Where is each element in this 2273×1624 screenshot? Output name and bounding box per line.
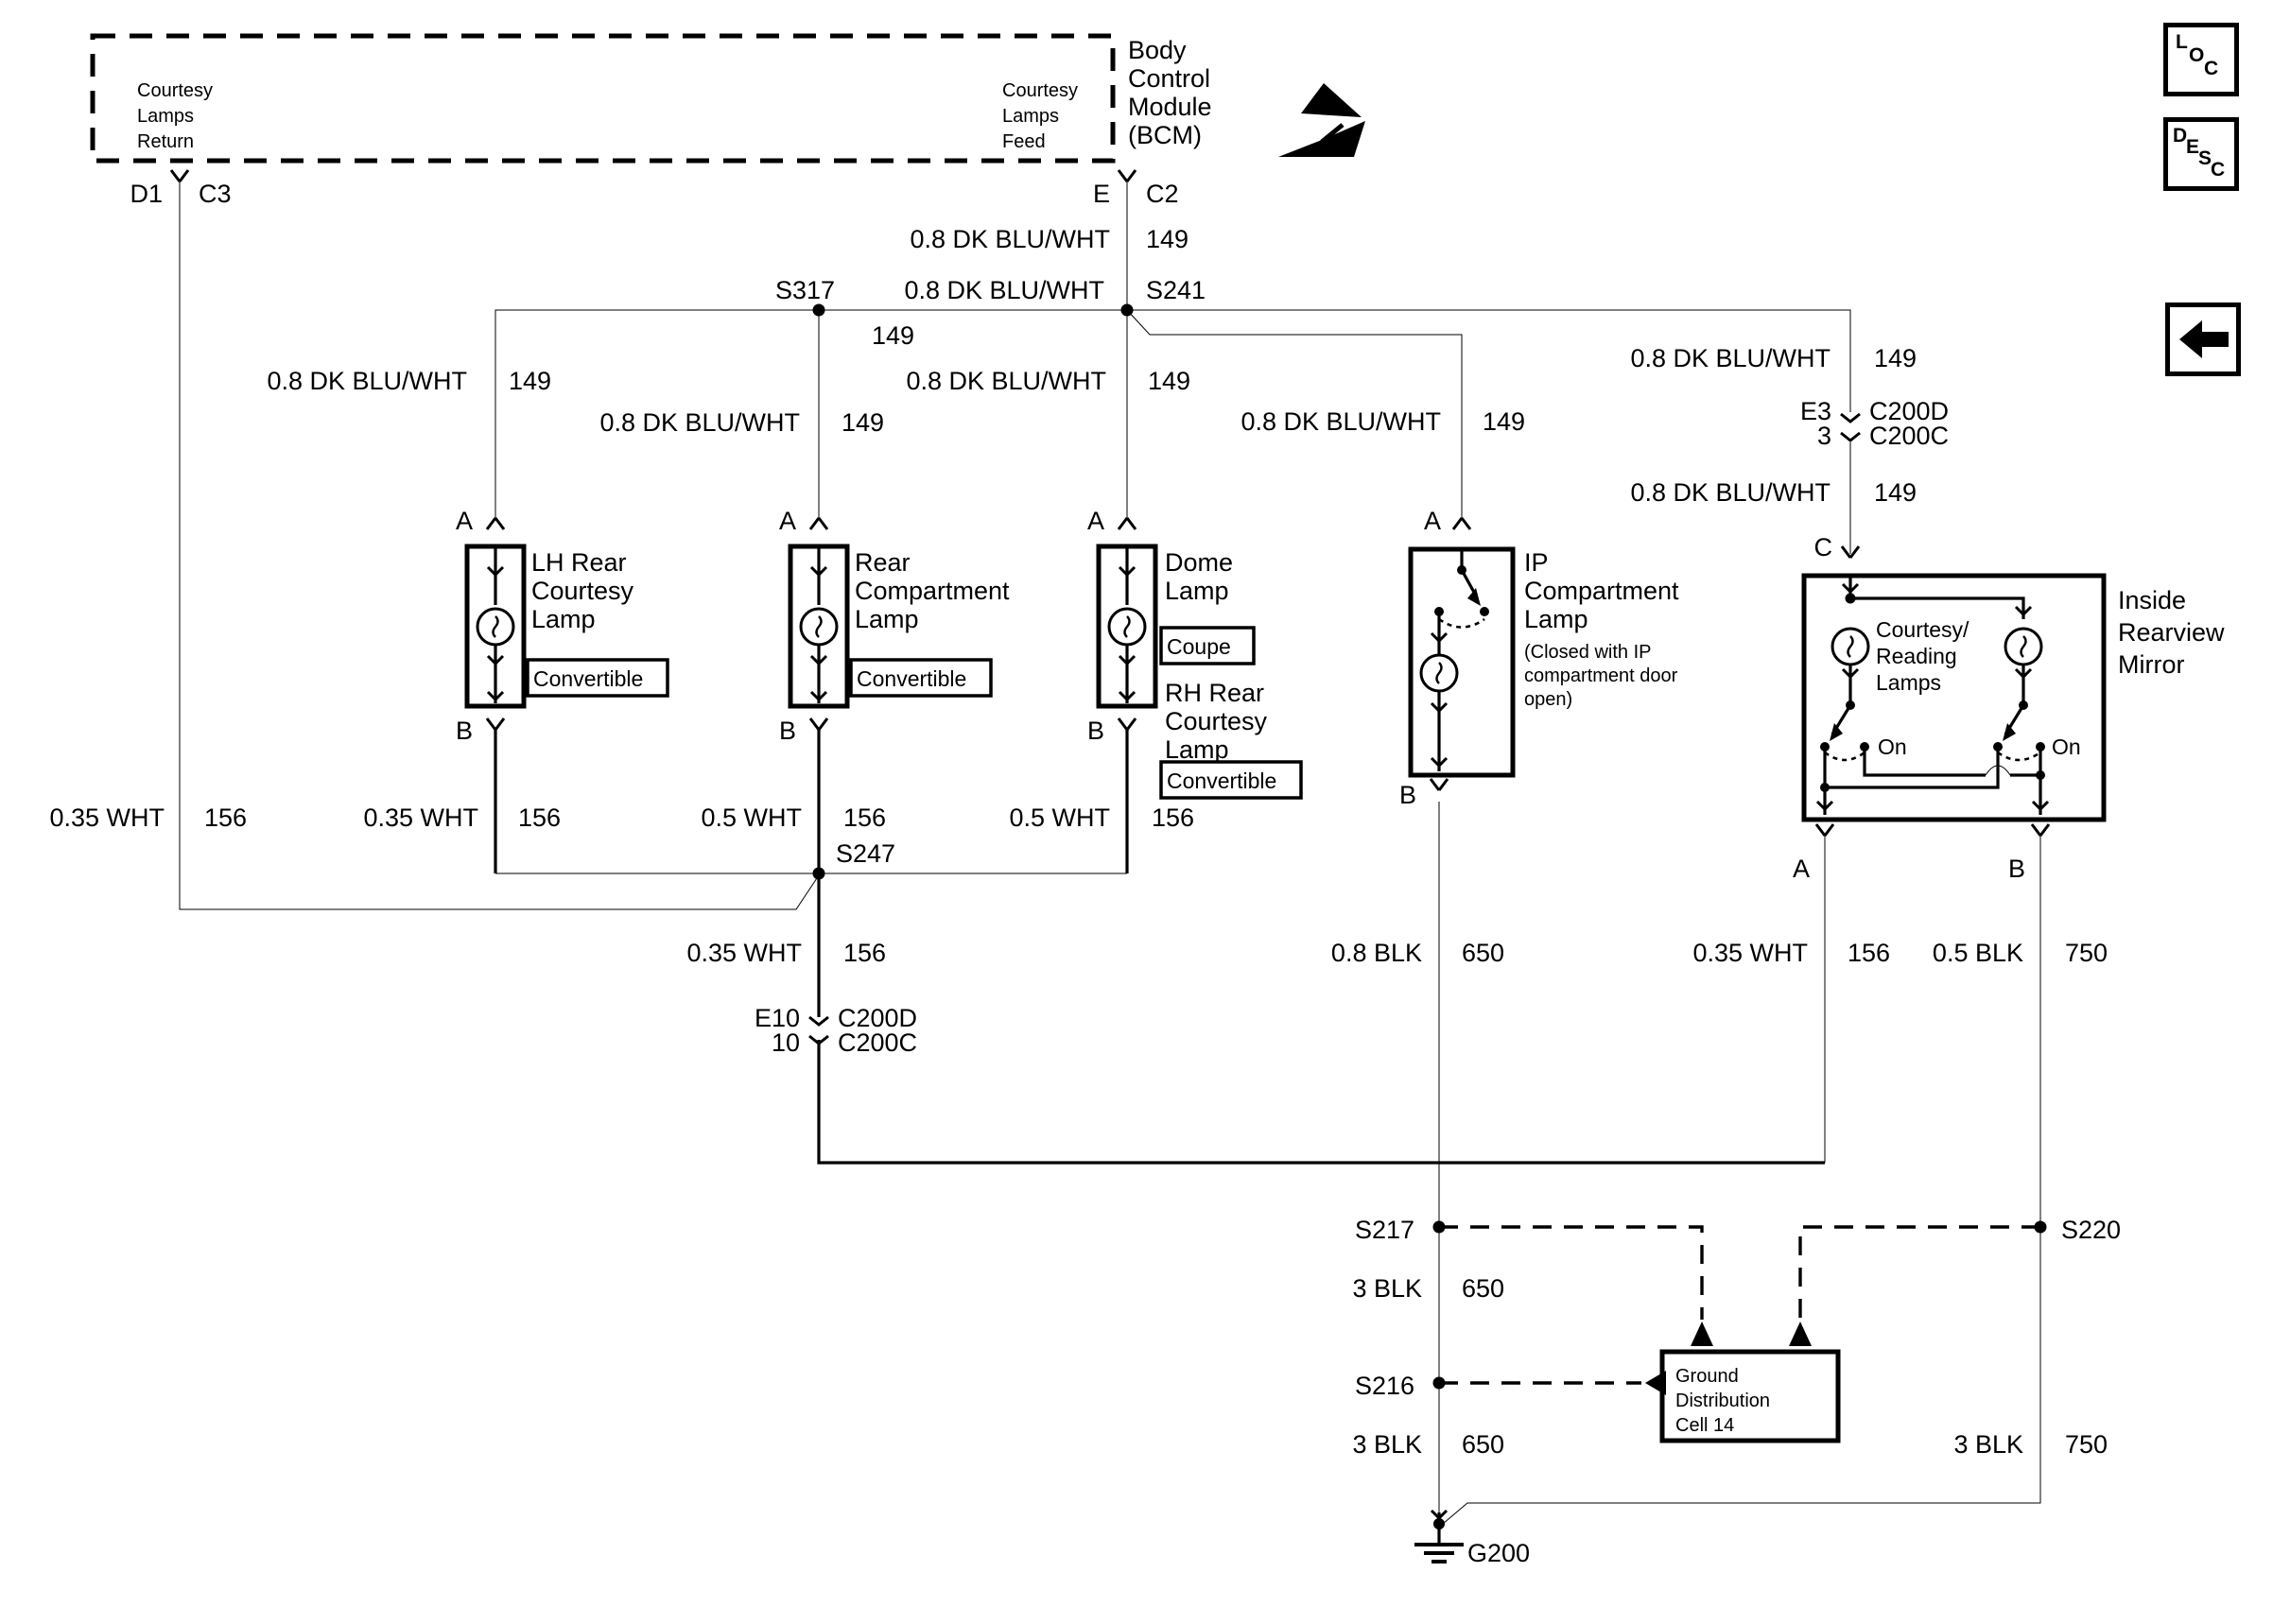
wire-name-mir_upper: 0.8 DK BLU/WHT — [1630, 344, 1831, 372]
courtesy-reading-lamps-label: Courtesy/ — [1876, 617, 1969, 642]
rh-rear-courtesy-lamp-label: Lamp — [1165, 735, 1229, 764]
splice-s216: S216 — [1355, 1372, 1414, 1400]
arrowhead — [1830, 723, 1843, 741]
wire-name-d1_ret: 0.35 WHT — [49, 803, 165, 832]
button-letter: S — [2198, 147, 2212, 170]
splice-s217: S217 — [1355, 1216, 1414, 1244]
button-letter: D — [2173, 125, 2187, 147]
wire-circuit-ip_blk: 650 — [1462, 939, 1504, 967]
connector-e10-pin: 10 — [772, 1028, 800, 1057]
wire-circuit-blk750: 750 — [2065, 1430, 2108, 1459]
rear-compartment-lamp-label: Lamp — [855, 605, 919, 633]
switch-throw-arc — [1998, 752, 2040, 760]
button-letter: E — [2186, 136, 2199, 159]
wire-name-lh: 0.8 DK BLU/WHT — [267, 367, 467, 395]
wire-circuit-mir_upper: 149 — [1874, 344, 1917, 372]
terminal-y-connector — [1431, 779, 1448, 790]
connector-c200c: C200C — [1869, 422, 1949, 450]
back-arrow-icon — [2170, 307, 2236, 371]
button-letter: O — [2189, 44, 2204, 67]
ground-distribution-cell-label: Ground — [1675, 1366, 1739, 1387]
tag-convertible: Convertible — [857, 666, 966, 691]
bcm-pin-return-label: Lamps — [137, 106, 194, 127]
wiring-diagram-page: CourtesyLampsReturnCourtesyLampsFeedBody… — [0, 0, 2273, 1624]
ref-arrow-icon — [1789, 1322, 1812, 1346]
bcm-title: Control — [1128, 64, 1210, 93]
ip-lamp-note: open) — [1524, 689, 1572, 710]
switch-throw-arc — [1825, 752, 1865, 760]
wire-circuit-lh_ret: 156 — [518, 803, 561, 832]
button-letter: L — [2176, 31, 2188, 54]
ip-compartment-lamp-label: Compartment — [1524, 577, 1679, 605]
terminal-b: B — [1399, 781, 1416, 809]
ip-lamp-note: compartment door — [1524, 665, 1678, 686]
bulb-filament — [1125, 616, 1130, 637]
terminal-c: C — [1814, 533, 1833, 561]
ref-dash-s220 — [1800, 1227, 2040, 1320]
terminal-a: A — [1087, 507, 1104, 535]
wire-circuit-blk650_b: 650 — [1462, 1430, 1504, 1459]
wire-circuit-mir_a_ret: 156 — [1848, 939, 1890, 967]
ip-compartment-lamp-label: Lamp — [1524, 605, 1588, 633]
wire-circuit-mir_lower: 149 — [1874, 478, 1917, 507]
terminal-b: B — [2008, 855, 2025, 883]
esd-icon — [1301, 83, 1362, 117]
dome-lamp-label: Dome — [1165, 548, 1233, 577]
rh-rear-courtesy-lamp-label: Courtesy — [1165, 707, 1268, 735]
splice-dot — [813, 304, 825, 317]
terminal-b: B — [1087, 717, 1104, 745]
lh-rear-courtesy-lamp-label: Courtesy — [531, 577, 634, 605]
wire-name-lh_ret: 0.35 WHT — [363, 803, 478, 832]
bulb-filament — [1848, 636, 1853, 657]
back-arrow-button[interactable] — [2165, 302, 2241, 376]
arrowhead — [1467, 588, 1481, 606]
courtesy-reading-lamps-label: Reading — [1876, 644, 1957, 668]
wire — [819, 1040, 1825, 1163]
wire-name-rc_ret: 0.5 WHT — [701, 803, 802, 832]
terminal-b: B — [779, 717, 796, 745]
inside-rearview-mirror-label: Mirror — [2118, 650, 2184, 679]
wire-name-dome_ret: 0.5 WHT — [1009, 803, 1110, 832]
wire — [1825, 747, 1998, 787]
terminal-a: A — [456, 507, 473, 535]
wire-circuit-feed: 149 — [1146, 225, 1189, 253]
splice-dot — [1480, 607, 1489, 616]
terminal-y-connector — [1453, 518, 1470, 529]
bcm-pin-feed-label: Lamps — [1002, 106, 1059, 127]
on-label: On — [1878, 734, 1907, 759]
on-label: On — [2052, 734, 2081, 759]
courtesy-reading-lamps-label: Lamps — [1876, 670, 1941, 695]
arrowhead — [2003, 723, 2016, 741]
wire-name-ip_blk: 0.8 BLK — [1331, 939, 1422, 967]
chevron-down-icon — [809, 1017, 828, 1025]
wire-circuit-dome_ret: 156 — [1152, 803, 1194, 832]
splice-dot — [1433, 1518, 1445, 1529]
wiring-diagram-canvas: CourtesyLampsReturnCourtesyLampsFeedBody… — [0, 0, 2273, 1624]
chevron-down-icon — [1841, 414, 1860, 422]
wire-name-mir_a_ret: 0.35 WHT — [1692, 939, 1808, 967]
splice-g200: G200 — [1467, 1539, 1530, 1567]
bcm-title: (BCM) — [1128, 121, 1202, 149]
bulb-filament — [494, 616, 498, 637]
terminal-y-connector — [1119, 170, 1136, 181]
wire-name-s247_stem: 0.35 WHT — [686, 939, 802, 967]
splice-s220: S220 — [2061, 1216, 2121, 1244]
ip-lamp-note: (Closed with IP — [1524, 642, 1652, 663]
connector-e3-pin: 3 — [1817, 422, 1831, 450]
chevron-down-icon — [1841, 433, 1860, 441]
lh-rear-courtesy-lamp-label: LH Rear — [531, 548, 627, 577]
wire-name-blk750: 3 BLK — [1953, 1430, 2023, 1459]
wire-name-blk650_b: 3 BLK — [1352, 1430, 1422, 1459]
terminal-y-connector — [171, 170, 188, 181]
terminal-b: B — [456, 717, 473, 745]
loc-button[interactable]: LOC — [2163, 23, 2239, 96]
bcm-pin-return-label: Courtesy — [137, 80, 213, 101]
terminal-y-connector — [1816, 824, 1833, 836]
wire-name-blk650_a: 3 BLK — [1352, 1274, 1422, 1303]
wire-circuit-lh: 149 — [509, 367, 551, 395]
connector-c3: C3 — [199, 180, 232, 208]
inside-rearview-mirror-label: Inside — [2118, 586, 2186, 614]
rear-compartment-lamp-label: Compartment — [855, 577, 1010, 605]
wire-circuit-mir_b_blk: 750 — [2065, 939, 2108, 967]
wire-circuit-ip: 149 — [1483, 407, 1525, 436]
ground-distribution-cell-label: Cell 14 — [1675, 1415, 1734, 1436]
rh-rear-courtesy-lamp-label: RH Rear — [1165, 679, 1264, 707]
wire-name-s317seg: 0.8 DK BLU/WHT — [904, 276, 1104, 304]
wire-name-feed: 0.8 DK BLU/WHT — [910, 225, 1110, 253]
wire-name-mir_b_blk: 0.5 BLK — [1933, 939, 2023, 967]
terminal-a: A — [1424, 507, 1441, 535]
wire-circuit-d1_ret: 156 — [204, 803, 247, 832]
connector-d1: D1 — [130, 180, 163, 208]
tag-coupe: Coupe — [1167, 634, 1231, 659]
wire-circuit-rc_ret: 156 — [843, 803, 886, 832]
rear-compartment-lamp-label: Rear — [855, 548, 911, 577]
button-letter: C — [2211, 159, 2225, 181]
bcm-pin-feed-label: Feed — [1002, 131, 1046, 152]
connector-c2: C2 — [1146, 180, 1179, 208]
bcm-title: Body — [1128, 36, 1187, 64]
bcm-pin-return-label: Return — [137, 131, 194, 152]
bulb-filament — [1437, 663, 1442, 683]
splice-dot — [1121, 304, 1134, 317]
bcm-pin-feed-label: Courtesy — [1002, 80, 1078, 101]
terminal-y-connector — [487, 518, 504, 529]
ref-dash-s217 — [1439, 1227, 1702, 1320]
terminal-y-connector — [2032, 824, 2049, 836]
bcm-title: Module — [1128, 93, 1212, 121]
splice-s241: S241 — [1146, 276, 1206, 304]
wire — [1850, 598, 2023, 619]
ip-compartment-lamp-label: IP — [1524, 548, 1549, 577]
tag-convertible: Convertible — [533, 666, 643, 691]
splice-s247: S247 — [836, 839, 895, 868]
terminal-y-connector — [810, 718, 827, 730]
wire-circuit-s317seg: 149 — [872, 321, 914, 350]
bulb-filament — [817, 616, 822, 637]
inside-rearview-mirror-label: Rearview — [2118, 618, 2225, 647]
wire-circuit-dome: 149 — [1148, 367, 1190, 395]
terminal-y-connector — [487, 718, 504, 730]
lh-rear-courtesy-lamp-label: Lamp — [531, 605, 596, 633]
wire-name-dome: 0.8 DK BLU/WHT — [906, 367, 1106, 395]
bulb-filament — [2021, 636, 2026, 657]
wire-name-mir_lower: 0.8 DK BLU/WHT — [1630, 478, 1831, 507]
tag-convertible: Convertible — [1167, 769, 1276, 793]
dome-lamp-label: Lamp — [1165, 577, 1229, 605]
terminal-y-connector — [810, 518, 827, 529]
ground-distribution-cell-label: Distribution — [1675, 1391, 1770, 1411]
bcm-box — [93, 36, 1113, 161]
connector-e: E — [1093, 180, 1110, 208]
ref-arrow-icon — [1691, 1322, 1713, 1346]
terminal-y-connector — [1119, 718, 1136, 730]
terminal-a: A — [1793, 855, 1810, 883]
connector-c200c: C200C — [838, 1028, 917, 1057]
terminal-a: A — [779, 507, 796, 535]
wire-circuit-blk650_a: 650 — [1462, 1274, 1504, 1303]
wire-circuit-rc: 149 — [842, 408, 884, 437]
splice-s317: S317 — [775, 276, 835, 304]
desc-button[interactable]: DESC — [2163, 117, 2239, 191]
wire-name-rc: 0.8 DK BLU/WHT — [599, 408, 800, 437]
button-letter: C — [2204, 58, 2218, 80]
wire-name-ip: 0.8 DK BLU/WHT — [1241, 407, 1441, 436]
switch-throw-arc — [1439, 619, 1484, 628]
wire-circuit-s247_stem: 156 — [843, 939, 886, 967]
terminal-y-connector — [1119, 518, 1136, 529]
